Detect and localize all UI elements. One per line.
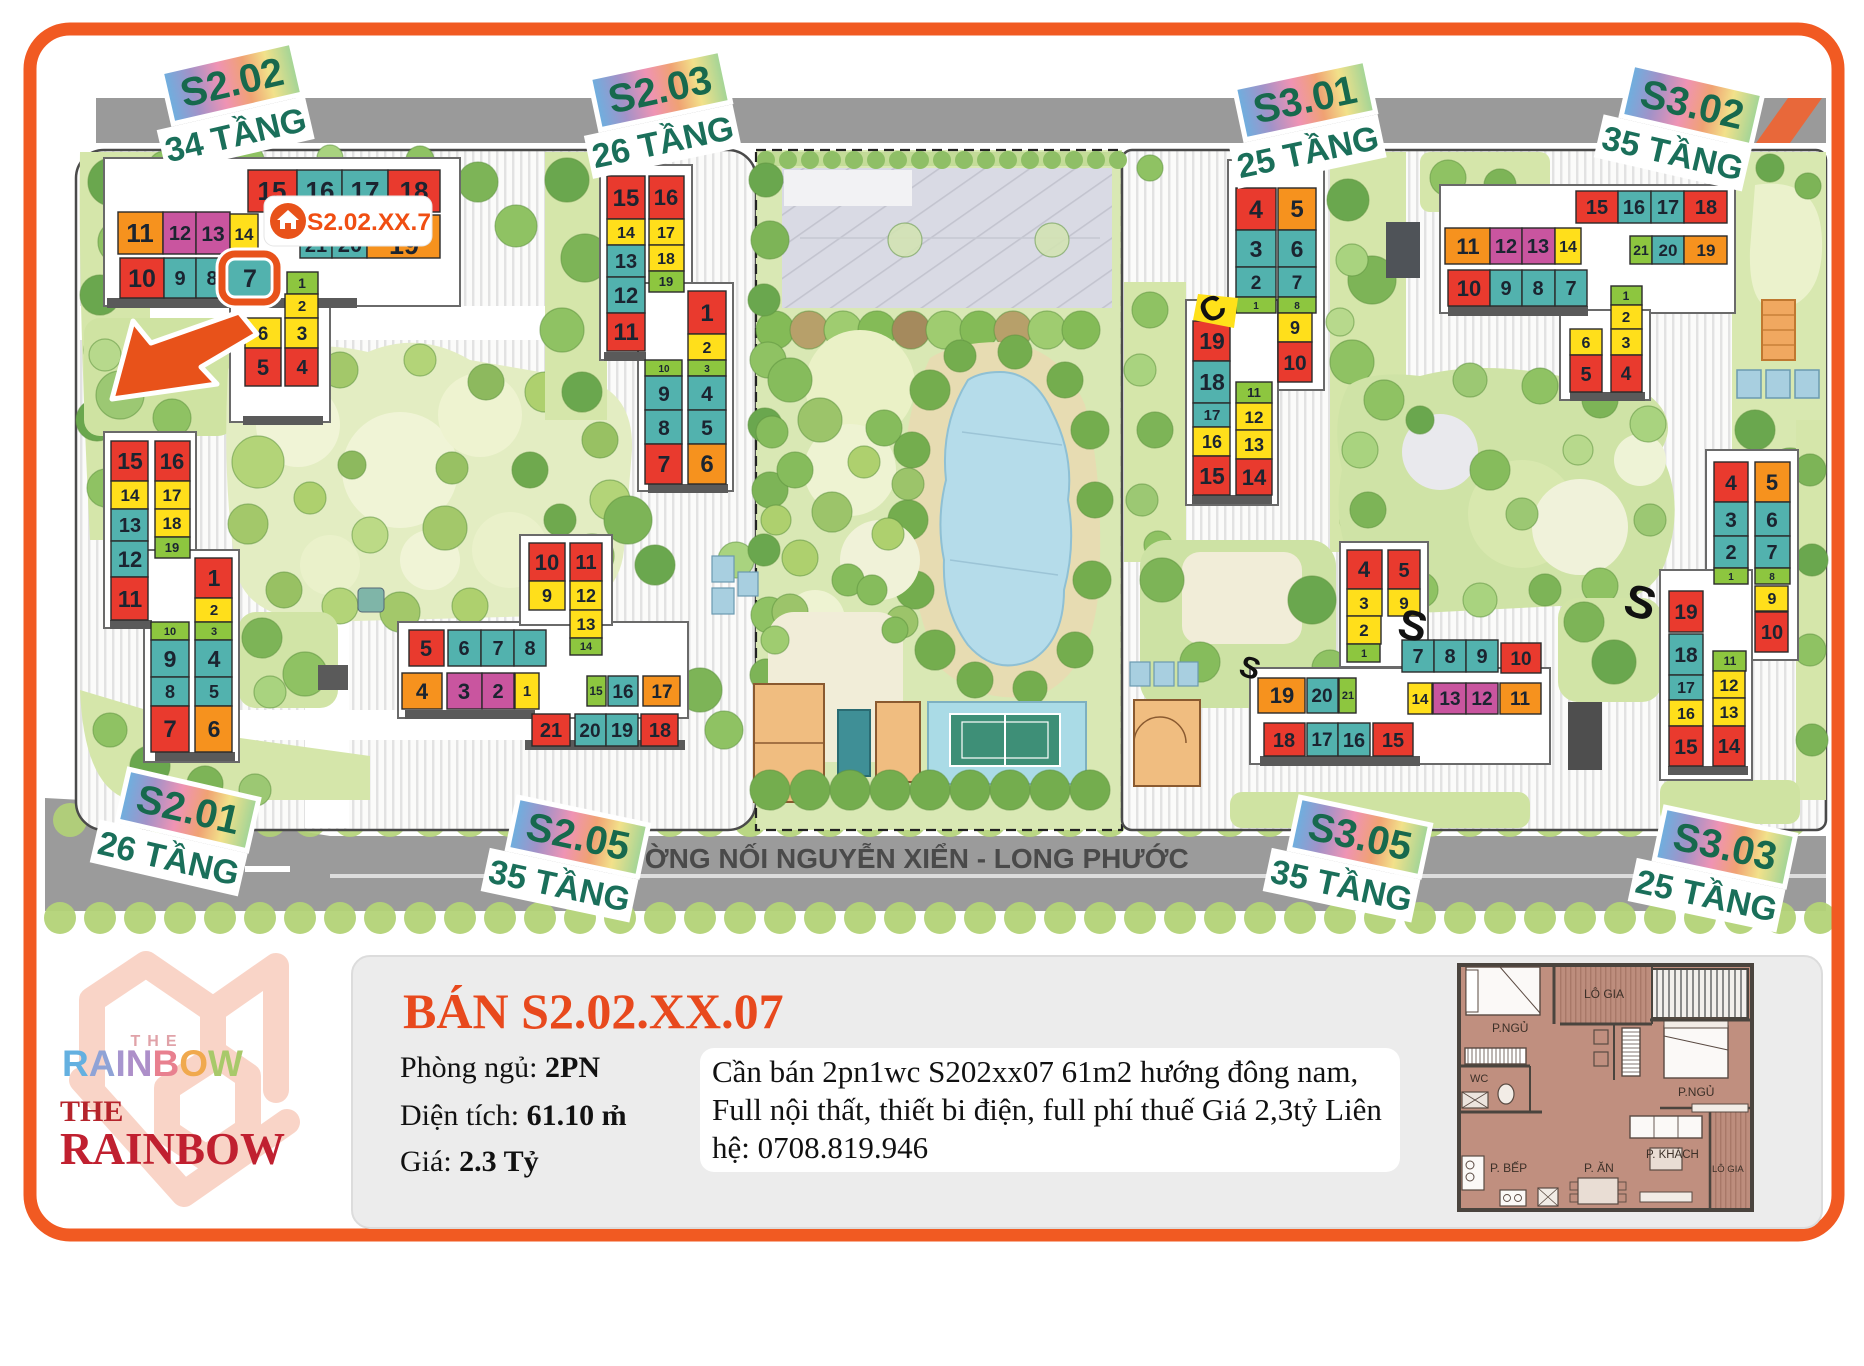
svg-text:18: 18: [1273, 730, 1295, 752]
svg-text:14: 14: [1718, 736, 1741, 758]
svg-text:6: 6: [458, 638, 469, 660]
svg-text:3: 3: [211, 626, 217, 638]
svg-text:19: 19: [1270, 683, 1294, 708]
svg-text:10: 10: [1761, 622, 1783, 644]
svg-text:2: 2: [1251, 273, 1262, 294]
svg-text:P.NGỦ: P.NGỦ: [1678, 1084, 1714, 1099]
svg-text:3: 3: [1250, 236, 1263, 262]
svg-text:19: 19: [611, 720, 633, 742]
svg-text:19: 19: [1697, 241, 1716, 260]
svg-text:5: 5: [1290, 196, 1303, 223]
svg-text:13: 13: [1720, 703, 1739, 722]
svg-text:12: 12: [1245, 408, 1264, 427]
svg-text:4: 4: [296, 357, 308, 379]
svg-text:8: 8: [658, 417, 670, 440]
svg-text:5: 5: [701, 417, 713, 440]
svg-text:LÔ GIA: LÔ GIA: [1584, 986, 1624, 1001]
svg-text:9: 9: [174, 268, 185, 290]
svg-text:2: 2: [1622, 309, 1630, 326]
svg-text:WC: WC: [1470, 1073, 1488, 1085]
svg-text:16: 16: [1677, 706, 1695, 723]
svg-text:18: 18: [163, 514, 182, 533]
svg-text:1: 1: [1623, 289, 1630, 303]
svg-text:7: 7: [1565, 278, 1576, 300]
svg-text:14: 14: [580, 641, 593, 653]
svg-text:5: 5: [1580, 364, 1591, 386]
svg-text:1: 1: [298, 275, 306, 291]
svg-text:13: 13: [1244, 435, 1264, 455]
svg-text:14: 14: [617, 225, 635, 242]
svg-text:1: 1: [700, 300, 713, 327]
svg-text:1: 1: [208, 565, 221, 591]
svg-text:5: 5: [209, 682, 219, 702]
svg-text:7: 7: [163, 716, 176, 743]
svg-text:P. KHÁCH: P. KHÁCH: [1646, 1148, 1699, 1161]
svg-text:8: 8: [524, 638, 535, 660]
svg-text:1: 1: [1361, 648, 1367, 660]
svg-text:10: 10: [658, 364, 670, 375]
svg-text:4: 4: [416, 679, 429, 704]
svg-text:21: 21: [540, 720, 562, 742]
svg-text:3: 3: [704, 364, 710, 375]
svg-text:16: 16: [612, 682, 633, 703]
svg-text:BÁN S2.02.XX.07: BÁN S2.02.XX.07: [403, 983, 784, 1039]
svg-text:3: 3: [458, 679, 470, 704]
svg-text:9: 9: [164, 646, 177, 672]
svg-text:ĐƯỜNG NỐI NGUYỄN XIỂN - LONG P: ĐƯỜNG NỐI NGUYỄN XIỂN - LONG PHƯỚC: [601, 842, 1188, 874]
svg-text:16: 16: [160, 449, 184, 474]
svg-text:11: 11: [126, 218, 154, 248]
svg-text:9: 9: [1476, 646, 1487, 668]
svg-text:Giá: 2.3 Tỷ: Giá: 2.3 Tỷ: [400, 1145, 539, 1178]
svg-text:11: 11: [1247, 385, 1261, 400]
svg-text:12: 12: [1471, 689, 1492, 710]
svg-text:15: 15: [589, 684, 603, 698]
svg-text:2: 2: [210, 602, 218, 619]
svg-text:P.NGỦ: P.NGỦ: [1492, 1020, 1528, 1035]
svg-text:RAINBOW: RAINBOW: [62, 1043, 243, 1084]
svg-text:9: 9: [1768, 591, 1777, 608]
svg-text:5: 5: [420, 636, 432, 661]
svg-text:12: 12: [576, 586, 596, 606]
svg-text:19: 19: [165, 540, 179, 555]
svg-text:4: 4: [701, 383, 713, 406]
svg-text:17: 17: [163, 486, 182, 505]
svg-text:3: 3: [297, 324, 308, 345]
svg-text:19: 19: [1674, 601, 1697, 624]
svg-text:13: 13: [201, 223, 224, 246]
svg-text:5: 5: [257, 355, 269, 380]
svg-text:20: 20: [1659, 241, 1678, 260]
svg-text:13: 13: [1527, 236, 1549, 258]
svg-text:13: 13: [119, 515, 141, 537]
svg-text:7: 7: [492, 638, 503, 660]
svg-text:10: 10: [164, 626, 176, 638]
svg-text:7: 7: [1292, 273, 1303, 294]
svg-text:18: 18: [1199, 369, 1225, 395]
svg-text:9: 9: [1500, 278, 1511, 300]
svg-text:Phòng ngủ: 2PN: Phòng ngủ: 2PN: [400, 1051, 600, 1084]
svg-text:7: 7: [1766, 542, 1777, 564]
svg-text:P. ĂN: P. ĂN: [1584, 1160, 1614, 1175]
svg-text:10: 10: [535, 550, 559, 575]
svg-text:11: 11: [118, 586, 143, 612]
svg-text:S2.02.XX.7: S2.02.XX.7: [307, 209, 431, 236]
svg-text:13: 13: [577, 615, 596, 634]
svg-text:2: 2: [298, 298, 306, 315]
svg-text:17: 17: [1677, 680, 1695, 697]
svg-text:10: 10: [1510, 649, 1531, 670]
svg-text:14: 14: [1412, 691, 1429, 708]
svg-text:12: 12: [1495, 236, 1517, 258]
svg-text:16: 16: [1202, 432, 1222, 452]
svg-text:16: 16: [654, 185, 678, 210]
svg-text:17: 17: [657, 225, 675, 242]
svg-text:10: 10: [1283, 352, 1306, 375]
svg-text:9: 9: [1290, 318, 1300, 338]
svg-text:11: 11: [1724, 654, 1737, 668]
svg-text:6: 6: [208, 716, 221, 742]
svg-text:12: 12: [169, 223, 191, 245]
svg-text:15: 15: [117, 448, 143, 474]
svg-text:12: 12: [1720, 676, 1739, 695]
svg-text:6: 6: [1582, 335, 1591, 352]
svg-text:2: 2: [492, 681, 503, 703]
svg-text:8: 8: [1294, 301, 1300, 312]
svg-text:2: 2: [703, 340, 712, 357]
svg-text:Diện tích: 61.10 m̉: Diện tích: 61.10 m̉: [400, 1099, 627, 1132]
svg-text:1: 1: [523, 683, 531, 700]
svg-text:4: 4: [1621, 364, 1632, 385]
svg-text:12: 12: [118, 547, 142, 572]
svg-text:4: 4: [1358, 557, 1371, 582]
svg-text:13: 13: [615, 251, 637, 273]
svg-text:3: 3: [1622, 335, 1631, 352]
svg-text:20: 20: [579, 721, 600, 742]
svg-text:16: 16: [1623, 197, 1645, 219]
svg-text:3: 3: [1359, 594, 1368, 613]
svg-text:8: 8: [165, 682, 175, 702]
svg-text:7: 7: [243, 265, 257, 293]
svg-text:14: 14: [235, 225, 254, 244]
svg-text:8: 8: [1769, 572, 1775, 583]
svg-text:17: 17: [1311, 730, 1332, 751]
svg-text:5: 5: [1398, 560, 1409, 582]
svg-text:10: 10: [128, 265, 156, 293]
svg-text:11: 11: [1456, 234, 1479, 259]
svg-text:17: 17: [651, 682, 672, 703]
svg-text:11: 11: [1510, 689, 1531, 710]
svg-text:Full nội thất, thiết bi điện,: Full nội thất, thiết bi điện, full phí t…: [712, 1092, 1382, 1127]
svg-text:15: 15: [1586, 197, 1608, 219]
svg-text:9: 9: [658, 383, 670, 406]
svg-text:1: 1: [1728, 572, 1734, 583]
svg-text:8: 8: [1444, 646, 1455, 668]
svg-text:P. BẾP: P. BẾP: [1490, 1160, 1527, 1175]
svg-text:13: 13: [1439, 689, 1460, 710]
svg-text:19: 19: [659, 274, 673, 289]
svg-text:18: 18: [1695, 197, 1717, 219]
svg-text:10: 10: [1457, 276, 1481, 301]
svg-text:Cần bán 2pn1wc S202xx07 61m2 h: Cần bán 2pn1wc S202xx07 61m2 hướng đông …: [712, 1054, 1358, 1089]
svg-text:2: 2: [1359, 621, 1368, 640]
svg-text:11: 11: [575, 552, 596, 574]
svg-text:15: 15: [1199, 463, 1225, 489]
svg-text:1: 1: [1253, 301, 1259, 312]
svg-text:17: 17: [1204, 407, 1221, 424]
svg-text:15: 15: [1382, 730, 1404, 752]
svg-text:18: 18: [1674, 644, 1698, 667]
svg-text:15: 15: [1674, 736, 1698, 759]
svg-text:14: 14: [1242, 465, 1267, 490]
svg-text:2: 2: [1725, 542, 1736, 564]
svg-text:9: 9: [542, 586, 552, 606]
svg-text:14: 14: [121, 486, 140, 505]
svg-text:3: 3: [1725, 509, 1737, 532]
svg-text:4: 4: [1725, 472, 1737, 495]
svg-text:14: 14: [1559, 239, 1577, 256]
svg-text:5: 5: [1766, 470, 1778, 495]
svg-text:RAINBOW: RAINBOW: [60, 1124, 285, 1174]
svg-text:21: 21: [1633, 242, 1649, 258]
svg-text:19: 19: [1199, 328, 1225, 354]
svg-text:4: 4: [208, 646, 221, 672]
svg-text:15: 15: [613, 185, 640, 212]
svg-text:6: 6: [1766, 509, 1778, 532]
svg-text:16: 16: [1343, 730, 1365, 752]
svg-text:17: 17: [1657, 197, 1679, 219]
svg-text:LÔ GIA: LÔ GIA: [1712, 1164, 1744, 1175]
svg-text:6: 6: [1291, 236, 1304, 262]
svg-text:18: 18: [649, 720, 671, 742]
svg-text:18: 18: [657, 251, 675, 268]
svg-text:hệ: 0708.819.946: hệ: 0708.819.946: [712, 1130, 928, 1165]
svg-text:20: 20: [1311, 686, 1332, 707]
svg-text:21: 21: [1342, 690, 1354, 702]
svg-text:8: 8: [1532, 278, 1543, 300]
svg-text:11: 11: [613, 319, 638, 346]
svg-text:12: 12: [614, 283, 638, 308]
svg-text:6: 6: [700, 451, 713, 478]
svg-text:7: 7: [658, 451, 671, 477]
svg-text:4: 4: [1249, 196, 1263, 224]
